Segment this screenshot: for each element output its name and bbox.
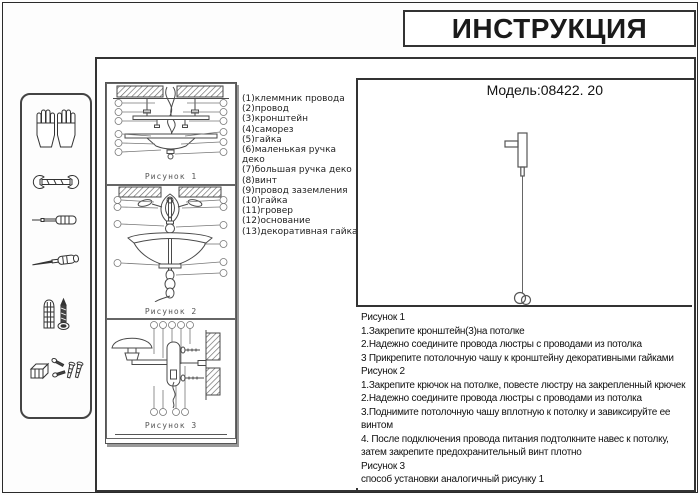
page-title: ИНСТРУКЦИЯ bbox=[452, 13, 648, 45]
figure-2: Рисунок 2 bbox=[106, 185, 236, 319]
fasteners-icon bbox=[22, 353, 90, 387]
figure-3-drawing bbox=[110, 320, 232, 416]
awl-icon bbox=[22, 250, 90, 270]
installation-instructions: Рисунок 1 1.Закрепите кронштейн(3)на пот… bbox=[356, 305, 692, 488]
model-number: Модель:08422. 20 bbox=[353, 82, 603, 98]
figure-2-label: Рисунок 2 bbox=[107, 307, 235, 316]
figure-2-drawing bbox=[110, 186, 232, 302]
figure-3-label: Рисунок 3 bbox=[107, 421, 235, 430]
anchor-and-screw-icon bbox=[22, 297, 90, 333]
instruction-sheet: ИНСТРУКЦИЯ bbox=[0, 0, 700, 495]
parts-list: (1)клеммник провода (2)провод (3)кронште… bbox=[242, 94, 358, 237]
figure-1-label: Рисунок 1 bbox=[107, 172, 235, 181]
title-box: ИНСТРУКЦИЯ bbox=[403, 10, 696, 47]
wrench-icon bbox=[22, 173, 90, 191]
figures-panel: Рисунок 1 bbox=[105, 82, 237, 444]
gloves-icon bbox=[22, 107, 90, 153]
screwdriver-icon bbox=[22, 213, 90, 227]
pendant-lamp-diagram bbox=[436, 112, 606, 312]
figure-3-underline bbox=[115, 434, 227, 435]
tools-sidebar bbox=[20, 93, 92, 419]
figure-1-drawing bbox=[110, 84, 232, 170]
figure-1: Рисунок 1 bbox=[106, 83, 236, 185]
figure-3: Рисунок 3 bbox=[106, 319, 236, 439]
